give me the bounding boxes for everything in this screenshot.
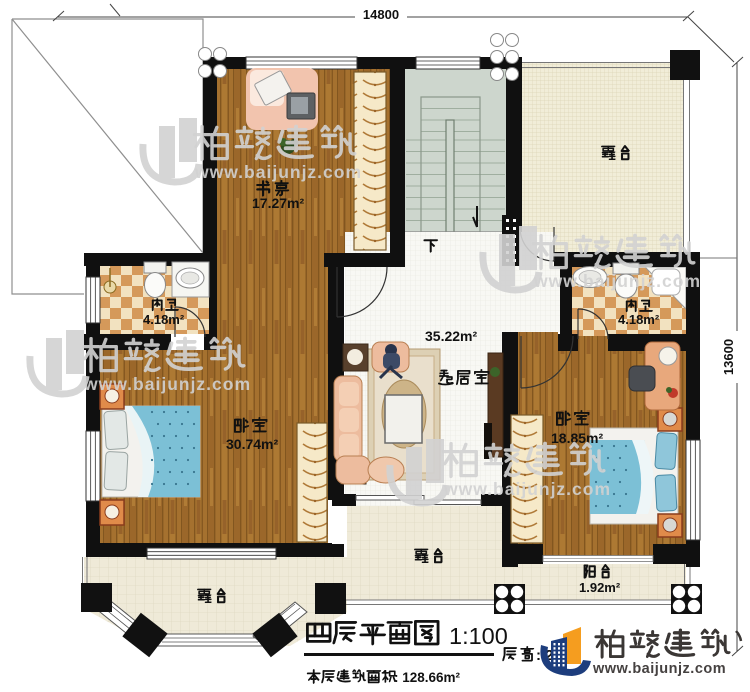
svg-text:17.27m²: 17.27m²: [252, 195, 304, 211]
svg-text:4.18m²: 4.18m²: [618, 312, 660, 327]
svg-text:14800: 14800: [363, 7, 399, 22]
svg-text:35.22m²: 35.22m²: [425, 328, 477, 344]
svg-text:www.baijunjz.com: www.baijunjz.com: [592, 661, 726, 677]
svg-text:30.74m²: 30.74m²: [226, 436, 278, 452]
svg-text:www.baijunjz.com: www.baijunjz.com: [194, 162, 362, 182]
svg-text:13600: 13600: [721, 339, 736, 375]
svg-text:www.baijunjz.com: www.baijunjz.com: [83, 374, 251, 394]
svg-text:1.92m²: 1.92m²: [579, 580, 621, 595]
svg-text:www.baijunjz.com: www.baijunjz.com: [443, 479, 611, 499]
svg-text:1:100: 1:100: [449, 623, 508, 649]
svg-text:: 128.66m²: : 128.66m²: [394, 670, 461, 685]
svg-text:www.baijunjz.com: www.baijunjz.com: [533, 271, 701, 291]
svg-text:4.18m²: 4.18m²: [143, 312, 185, 327]
svg-text:18.85m²: 18.85m²: [551, 430, 603, 446]
